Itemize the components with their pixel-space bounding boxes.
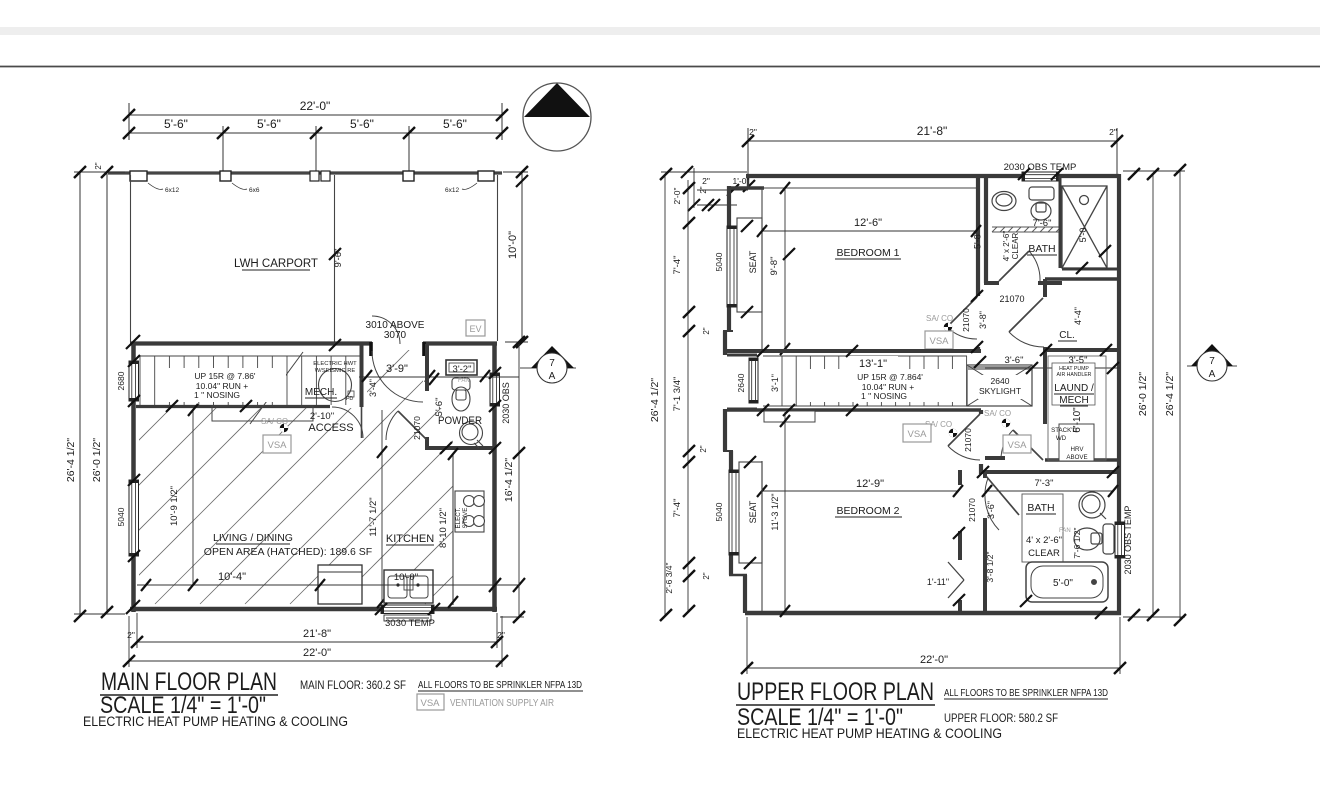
svg-text:VENTILATION SUPPLY AIR: VENTILATION SUPPLY AIR: [450, 697, 554, 709]
svg-text:7: 7: [1209, 356, 1215, 367]
svg-text:A: A: [549, 371, 556, 382]
svg-text:SA/ CO: SA/ CO: [984, 409, 1011, 418]
svg-text:VSA: VSA: [267, 440, 287, 451]
svg-text:6x12: 6x12: [165, 187, 179, 194]
svg-text:4' x 2'-6": 4' x 2'-6": [1002, 231, 1011, 262]
svg-text:VSA: VSA: [929, 336, 949, 347]
svg-text:3070: 3070: [384, 330, 407, 341]
svg-text:5'-6": 5'-6": [443, 117, 467, 131]
svg-text:21'-8": 21'-8": [917, 124, 948, 138]
svg-text:2'-10": 2'-10": [310, 411, 334, 422]
svg-text:FAN: FAN: [458, 378, 470, 384]
svg-text:26'-0 1/2": 26'-0 1/2": [1137, 372, 1149, 417]
svg-text:10'-0": 10'-0": [394, 572, 418, 583]
svg-text:22'-0": 22'-0": [303, 647, 331, 659]
svg-text:ELECTRIC HWT: ELECTRIC HWT: [313, 361, 357, 367]
svg-text:ELECTRIC HEAT PUMP HEATING & C: ELECTRIC HEAT PUMP HEATING & COOLING: [737, 726, 1002, 741]
svg-text:10'-0": 10'-0": [507, 231, 519, 259]
svg-text:MECH.: MECH.: [305, 387, 337, 398]
svg-text:4' x 2'-6": 4' x 2'-6": [1026, 535, 1062, 546]
svg-text:26'-4 1/2": 26'-4 1/2": [1164, 372, 1176, 417]
svg-text:LAUND /: LAUND /: [1054, 383, 1094, 394]
svg-text:2": 2": [702, 327, 711, 334]
svg-text:21070: 21070: [967, 498, 977, 522]
svg-text:3'-1": 3'-1": [770, 374, 780, 392]
svg-text:UP 15R @ 7.864': UP 15R @ 7.864': [857, 372, 923, 382]
svg-text:21070: 21070: [999, 294, 1024, 304]
svg-text:21070: 21070: [961, 308, 971, 332]
svg-text:22'-0": 22'-0": [920, 654, 948, 666]
svg-text:5'-0: 5'-0: [1078, 228, 1088, 243]
svg-text:6x12: 6x12: [445, 187, 459, 194]
svg-text:CLEAR: CLEAR: [1011, 232, 1020, 259]
svg-text:FAN: FAN: [1059, 528, 1071, 534]
svg-text:3'-4": 3'-4": [368, 379, 378, 397]
svg-text:13'-1": 13'-1": [859, 358, 887, 370]
svg-text:21'-8": 21'-8": [303, 628, 331, 640]
svg-text:ELECT.: ELECT.: [455, 507, 462, 528]
svg-text:W/SEISMIC RE: W/SEISMIC RE: [315, 368, 356, 374]
svg-text:3'-9": 3'-9": [386, 363, 408, 375]
svg-text:2030 OBS TEMP: 2030 OBS TEMP: [1004, 162, 1077, 173]
svg-text:26'-0 1/2": 26'-0 1/2": [91, 438, 103, 483]
svg-text:2": 2": [127, 630, 135, 640]
svg-text:26'-4 1/2": 26'-4 1/2": [65, 438, 77, 483]
svg-text:11'-7 1/2": 11'-7 1/2": [368, 497, 379, 536]
svg-text:2": 2": [699, 186, 708, 193]
svg-text:2680: 2680: [116, 371, 126, 390]
svg-text:2640: 2640: [736, 373, 746, 392]
svg-text:CLEAR: CLEAR: [1028, 548, 1060, 559]
svg-text:BEDROOM 2: BEDROOM 2: [836, 505, 899, 517]
svg-text:2030 OBS TEMP: 2030 OBS TEMP: [1123, 506, 1133, 575]
svg-text:7'-6 1/2": 7'-6 1/2": [1072, 527, 1082, 558]
svg-text:5040: 5040: [714, 502, 724, 521]
svg-text:A: A: [1209, 369, 1216, 380]
svg-text:VSA: VSA: [420, 698, 440, 709]
svg-text:6'-10": 6'-10": [1072, 407, 1083, 433]
svg-text:ALL FLOORS TO BE SPRINKLER NFP: ALL FLOORS TO BE SPRINKLER NFPA 13D: [418, 679, 582, 691]
svg-text:2": 2": [699, 445, 708, 452]
svg-text:MAIN FLOOR: 360.2 SF: MAIN FLOOR: 360.2 SF: [300, 678, 406, 692]
svg-text:8'-10 1/2": 8'-10 1/2": [438, 508, 449, 548]
svg-text:1'-11": 1'-11": [927, 577, 949, 587]
svg-text:9'-8": 9'-8": [769, 257, 780, 276]
svg-text:7'-4": 7'-4": [672, 256, 683, 275]
svg-text:STOVE: STOVE: [462, 508, 469, 529]
svg-text:WD: WD: [1056, 435, 1067, 442]
svg-text:2": 2": [94, 162, 103, 169]
svg-text:7'-4": 7'-4": [672, 499, 683, 518]
svg-text:UPPER FLOOR: 580.2 SF: UPPER FLOOR: 580.2 SF: [944, 711, 1058, 725]
svg-text:7'-1 3/4": 7'-1 3/4": [672, 377, 683, 412]
svg-text:10'-9 1/2": 10'-9 1/2": [169, 486, 180, 526]
svg-text:26'-4 1/2": 26'-4 1/2": [649, 378, 661, 423]
svg-text:BEDROOM 1: BEDROOM 1: [836, 247, 899, 259]
svg-text:21070: 21070: [412, 416, 422, 440]
svg-text:5'-8": 5'-8": [973, 231, 983, 249]
svg-text:HRV: HRV: [1071, 446, 1085, 453]
svg-text:5'-0": 5'-0": [1053, 578, 1073, 589]
svg-text:3030 TEMP: 3030 TEMP: [385, 618, 435, 629]
svg-text:EV: EV: [469, 324, 481, 334]
svg-text:UP 15R @ 7.86': UP 15R @ 7.86': [194, 371, 256, 381]
svg-text:7: 7: [549, 358, 555, 369]
svg-text:16'-4 1/2": 16'-4 1/2": [503, 458, 515, 503]
svg-text:2'-6 3/4": 2'-6 3/4": [664, 562, 674, 593]
svg-text:2": 2": [1109, 127, 1117, 137]
svg-text:VSA: VSA: [907, 429, 927, 440]
svg-text:5'-6": 5'-6": [164, 117, 188, 131]
svg-text:UPPER FLOOR PLAN: UPPER FLOOR PLAN: [737, 678, 934, 706]
svg-text:SA/ CO: SA/ CO: [926, 314, 953, 323]
svg-text:ELECTRIC HEAT PUMP HEATING & C: ELECTRIC HEAT PUMP HEATING & COOLING: [83, 714, 348, 729]
svg-text:BATH: BATH: [1027, 502, 1054, 514]
svg-text:2640: 2640: [991, 376, 1010, 386]
svg-text:3'-8": 3'-8": [978, 311, 988, 329]
svg-text:AIR HANDLER: AIR HANDLER: [1057, 372, 1092, 378]
svg-text:SEAT: SEAT: [748, 250, 758, 273]
svg-text:6x6: 6x6: [249, 187, 260, 194]
svg-text:3'-2": 3'-2": [453, 364, 472, 375]
svg-text:3'-6": 3'-6": [986, 501, 996, 519]
svg-text:4'-4": 4'-4": [1073, 307, 1083, 325]
svg-text:7'-3": 7'-3": [1035, 478, 1054, 489]
svg-text:2": 2": [702, 572, 711, 579]
svg-text:OPEN AREA (HATCHED): 189.6 SF: OPEN AREA (HATCHED): 189.6 SF: [204, 546, 372, 558]
svg-text:3'-6": 3'-6": [1005, 355, 1024, 366]
svg-text:5040: 5040: [714, 252, 724, 271]
svg-text:ACCESS: ACCESS: [308, 422, 353, 434]
svg-text:ABOVE: ABOVE: [1066, 454, 1087, 461]
svg-text:5'-6": 5'-6": [350, 117, 374, 131]
svg-text:CL.: CL.: [1059, 330, 1075, 341]
svg-text:POWDER: POWDER: [438, 415, 482, 427]
svg-text:10'-4": 10'-4": [218, 571, 246, 583]
svg-text:VSA: VSA: [1007, 440, 1027, 451]
svg-text:5'-6": 5'-6": [257, 117, 281, 131]
svg-text:LIVING / DINING: LIVING / DINING: [213, 532, 293, 544]
svg-text:22'-0": 22'-0": [300, 99, 331, 113]
svg-text:BATH: BATH: [1028, 243, 1055, 255]
svg-text:7'-6": 7'-6": [1033, 218, 1052, 229]
svg-text:ALL FLOORS TO BE SPRINKLER NFP: ALL FLOORS TO BE SPRINKLER NFPA 13D: [944, 687, 1108, 699]
svg-text:11'-3 1/2": 11'-3 1/2": [770, 493, 780, 530]
svg-text:SKYLIGHT: SKYLIGHT: [979, 386, 1021, 396]
svg-text:1'-0": 1'-0": [733, 176, 750, 186]
svg-text:1 " NOSING: 1 " NOSING: [194, 390, 240, 400]
svg-text:KITCHEN: KITCHEN: [386, 533, 434, 545]
svg-text:2'-0": 2'-0": [672, 188, 682, 205]
svg-text:12'-9": 12'-9": [856, 478, 884, 490]
svg-text:12'-6": 12'-6": [854, 217, 882, 229]
svg-text:5040: 5040: [116, 507, 126, 526]
svg-text:LWH CARPORT: LWH CARPORT: [234, 258, 318, 270]
svg-text:MECH: MECH: [1059, 395, 1088, 406]
svg-text:5'-6": 5'-6": [434, 398, 445, 417]
svg-text:SEAT: SEAT: [748, 500, 758, 523]
svg-text:21070: 21070: [963, 428, 973, 452]
svg-text:2030 OBS: 2030 OBS: [501, 382, 511, 424]
svg-text:2": 2": [702, 176, 710, 186]
svg-text:1 " NOSING: 1 " NOSING: [861, 391, 907, 401]
